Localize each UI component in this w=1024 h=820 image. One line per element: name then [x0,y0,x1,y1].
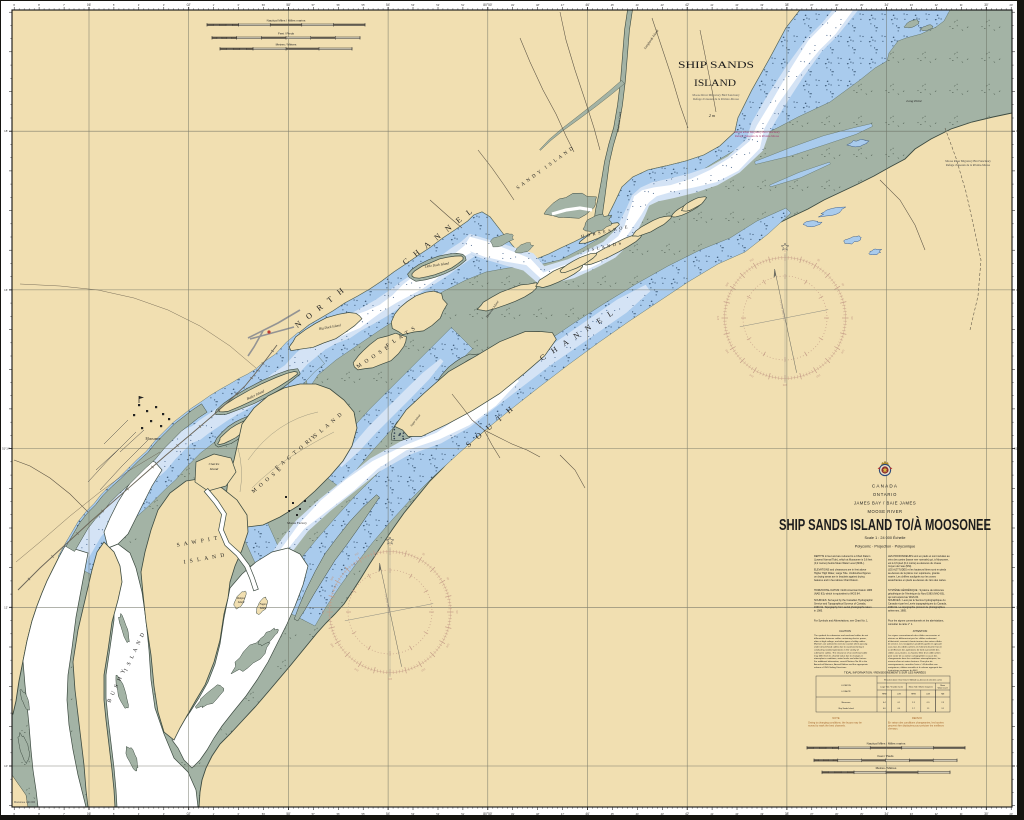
svg-text:atmospheric conditions, water: atmospheric conditions, water levels and… [814,657,867,660]
svg-text:36': 36' [835,3,839,7]
svg-text:Nautical Miles / Milles marins: Nautical Miles / Milles marins [267,19,306,23]
svg-text:renseignements, consulter l'av: renseignements, consulter l'avis n° 44 d… [888,663,939,666]
svg-text:Mariners are advised to exerci: Mariners are advised to exercise caution… [814,643,868,646]
svg-text:38': 38' [785,3,790,7]
svg-text:0.9: 0.9 [927,702,930,704]
svg-text:LLW: LLW [926,694,930,696]
svg-text:Island: Island [209,467,219,471]
svg-text:may differ from its charted va: may differ from its charted value due to… [814,654,864,657]
svg-text:30': 30' [984,3,989,7]
svg-text:39': 39' [760,3,764,7]
svg-text:(0,2 metres) below Mean Water: (0,2 metres) below Mean Water Level (MWL… [814,562,865,565]
svg-text:de service. Les navigateurs pr: de service. Les navigateurs prudents gar… [888,643,942,646]
svg-text:volume of CHS Sailing Directio: volume of CHS Sailing Directions. [814,666,847,669]
svg-text:LOCATION: LOCATION [841,684,851,687]
svg-text:submarine cables. The clearanc: submarine cables. The clearance of an ov… [814,651,868,654]
svg-text:Moose Factory: Moose Factory [287,521,307,525]
svg-text:Water Level: Water Level [938,687,949,690]
svg-text:Feet / Pieds: Feet / Pieds [278,32,295,36]
svg-text:NOTE: NOTE [832,716,839,720]
svg-text:ISLAND: ISLAND [694,78,737,88]
svg-text:CANADA: CANADA [872,484,898,489]
svg-text:ou d'effectuer des opérations: ou d'effectuer des opérations de fond à … [888,649,940,652]
svg-text:Long Point: Long Point [905,99,922,103]
svg-text:chenaux.: chenaux. [888,728,898,731]
svg-text:TIDAL INFORMATION / RENSEIGNEM: TIDAL INFORMATION / RENSEIGNEMENTS SUR L… [844,670,926,675]
svg-text:peut varier de sa valeur carto: peut varier de sa valeur cartographiée à… [888,654,938,657]
svg-text:2 m: 2 m [709,113,715,118]
svg-text:LLW: LLW [897,694,901,696]
svg-text:270: 270 [716,315,720,320]
svg-text:59': 59' [262,3,266,7]
svg-text:37': 37' [810,3,814,7]
svg-text:180: 180 [387,677,392,681]
svg-text:42': 42' [685,3,690,7]
svg-text:Maipon: Maipon [236,597,246,600]
svg-text:JAMES BAY / BAIE JAMES: JAMES BAY / BAIE JAMES [854,501,916,506]
svg-text:Metres / Mètres: Metres / Mètres [876,766,897,770]
svg-text:changements dans les condition: changements dans les conditions atmosphé… [888,657,941,660]
svg-text:3.1: 3.1 [941,708,944,710]
svg-text:under all overhead cables due: under all overhead cables due to avoid a… [814,646,865,649]
svg-text:LOCALITÉ: LOCALITÉ [841,690,851,693]
svg-text:SHIP SANDS ISLAND TO/À MOOSONE: SHIP SANDS ISLAND TO/À MOOSONEE [779,517,991,534]
svg-text:Refuge d'oiseaux de la Rivière: Refuge d'oiseaux de la Rivière-Moose [946,163,991,167]
svg-text:câbles sous-marins. La hauteur: câbles sous-marins. La hauteur libre d'u… [888,651,941,654]
svg-text:Refuge d'oiseaux de la Rivière: Refuge d'oiseaux de la Rivière-Moose [735,134,780,138]
svg-text:18': 18' [4,129,8,133]
svg-text:Mean Tide / Marée moyenne: Mean Tide / Marée moyenne [909,686,933,689]
svg-text:SHIP SANDS: SHIP SANDS [678,60,754,70]
svg-text:49': 49' [511,3,515,7]
svg-text:Fagan: Fagan [259,603,267,606]
svg-text:Elevation above Chart Datum /: Elevation above Chart Datum / Altitude a… [884,679,942,682]
svg-text:HHW: HHW [911,694,916,696]
svg-text:Refuge d'oiseaux de la Rivière: Refuge d'oiseaux de la Rivière-Moose [693,97,740,101]
svg-text:12': 12' [4,605,8,609]
svg-text:Charles: Charles [209,462,220,466]
svg-text:d'électricité, souvent à haute: d'électricité, souvent à haute tension, … [888,640,943,643]
svg-text:53': 53' [411,3,415,7]
svg-text:asséchantes en pieds au-dessus: asséchantes en pieds au-dessus du zéro d… [888,579,947,582]
svg-text:Moosonee: Moosonee [146,437,161,441]
svg-text:10': 10' [4,764,8,768]
svg-text:46': 46' [585,3,590,7]
svg-text:5.3: 5.3 [912,702,915,704]
svg-text:51': 51' [461,3,465,7]
svg-text:ATTENTION: ATTENTION [913,629,928,633]
svg-text:in 1985.: in 1985. [814,609,823,612]
svg-text:For Symbols and Abbreviations,: For Symbols and Abbreviations, see Chart… [814,620,868,623]
svg-text:For additional information, co: For additional information, consult Noti… [814,660,868,663]
svg-text:Metres / Mètres: Metres / Mètres [276,43,297,47]
svg-text:consulter la carte n° 1.: consulter la carte n° 1. [888,623,913,626]
svg-text:often at high voltage, and oth: often at high voltage, and other types o… [814,640,866,643]
svg-text:Polyconic · Projection · Polyc: Polyconic · Projection · Polyconique [855,545,916,549]
svg-text:48': 48' [536,3,540,7]
svg-text:moved to mark the best channel: moved to mark the best channels. [808,725,846,728]
svg-text:MOOSE RIVER: MOOSE RIVER [867,509,902,514]
svg-text:47': 47' [561,3,565,7]
svg-text:51°14': 51°14' [2,447,10,451]
svg-text:CAUTION: CAUTION [839,629,851,633]
svg-text:270: 270 [321,609,325,614]
svg-text:02': 02' [187,3,192,7]
svg-text:RENVOI: RENVOI [912,716,922,720]
svg-text:32': 32' [935,3,939,7]
svg-text:43': 43' [661,3,665,7]
svg-text:differentiate between cables c: differentiate between cables containing … [814,637,867,640]
svg-text:80°50': 80°50' [483,3,492,7]
svg-text:NM: NM [941,694,944,696]
svg-text:56': 56' [337,3,341,7]
svg-text:33': 33' [910,3,914,7]
svg-text:45': 45' [611,3,615,7]
svg-text:6.4: 6.4 [883,702,886,704]
svg-text:ONTARIO: ONTARIO [873,492,897,497]
svg-text:6.6: 6.6 [883,708,886,710]
svg-text:The symbols for submarine and: The symbols for submarine and overhead c… [814,634,868,637]
svg-text:31': 31' [960,3,964,7]
svg-text:5.7: 5.7 [912,708,915,710]
svg-text:52': 52' [436,3,440,7]
svg-text:Ship Sands Island: Ship Sands Island [838,708,853,710]
svg-text:Scale 1 : 24 000 Échelle: Scale 1 : 24 000 Échelle [865,535,906,540]
svg-text:navigateurs, édition annuelle: navigateurs, édition annuelle et le volu… [888,666,943,669]
svg-text:180: 180 [782,383,787,387]
svg-text:sous tous les câbles aériens e: sous tous les câbles aériens et éviteron… [888,646,943,649]
svg-text:55': 55' [362,3,366,7]
svg-text:06': 06' [87,3,92,7]
svg-text:features and in feet above Cha: features and in feet above Chart Datum. [814,579,859,582]
svg-text:(NAD 83), which is equivalent: (NAD 83), which is equivalent to WGS 84. [814,592,861,595]
svg-text:16': 16' [4,288,8,292]
svg-text:29': 29' [1010,3,1014,7]
svg-text:40': 40' [735,3,739,7]
svg-text:54': 54' [386,3,391,7]
svg-text:conducting seabed operations i: conducting seabed operations in the vici… [814,649,859,652]
svg-text:Large Tide / Grande marée: Large Tide / Grande marée [880,686,903,689]
svg-text:58': 58' [286,3,291,7]
svg-text:34': 34' [885,3,890,7]
svg-text:Moosonee: Moosonee [842,702,851,704]
svg-text:41': 41' [710,3,714,7]
svg-text:HHW: HHW [882,694,887,696]
svg-text:57': 57' [312,3,316,7]
svg-text:2.9: 2.9 [941,702,944,704]
svg-text:Nautical Miles / Milles marins: Nautical Miles / Milles marins [867,742,906,746]
svg-text:Island: Island [259,607,267,610]
svg-text:35': 35' [860,3,864,7]
svg-text:0.4: 0.4 [898,708,901,710]
svg-text:Annual ed Mariners, Annual Edi: Annual ed Mariners, Annual Edition and t… [814,663,869,666]
svg-text:0.1: 0.1 [898,702,901,704]
svg-text:aériennes, 1985.: aériennes, 1985. [888,609,907,612]
svg-text:Island: Island [237,601,245,604]
svg-text:Feet / Pieds: Feet / Pieds [877,754,894,758]
svg-text:1.1: 1.1 [927,708,930,710]
svg-text:aériens ne différencient pas l: aériens ne différencient pas les câbles … [888,637,937,640]
svg-text:niveaux d'eau et autres facteu: niveaux d'eau et autres facteurs. Pour p… [888,660,933,663]
svg-text:Les signes conventionnels des: Les signes conventionnels des câbles sou… [888,634,940,637]
svg-text:44': 44' [636,3,640,7]
svg-text:Moosonee 1:24 000: Moosonee 1:24 000 [14,801,36,804]
